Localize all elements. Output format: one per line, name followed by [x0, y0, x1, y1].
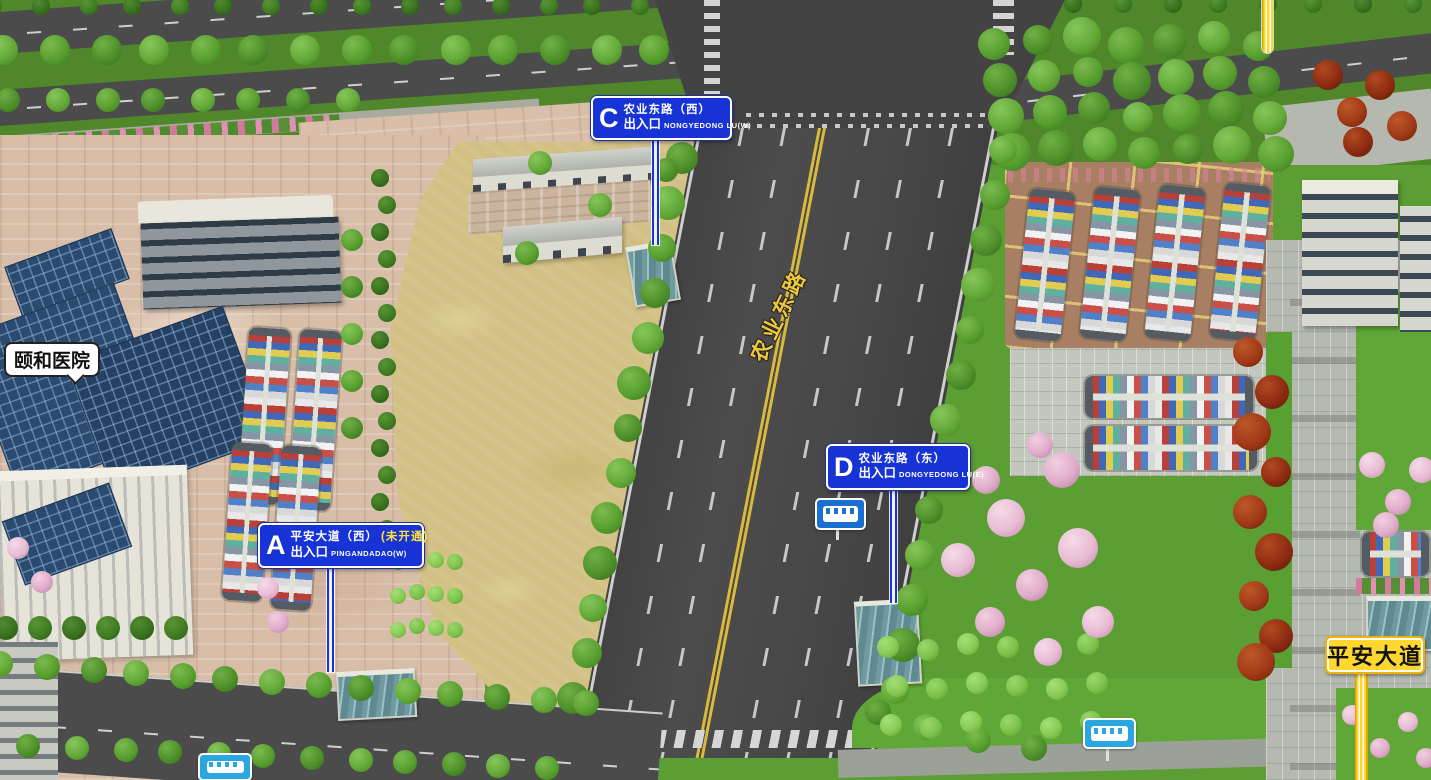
crosswalk-dots	[746, 113, 986, 117]
sign-road-name: 农业东路（东）	[859, 453, 985, 467]
tree	[1037, 639, 1059, 661]
tree	[987, 499, 1025, 537]
parked-cars-row	[1085, 376, 1253, 418]
entrance-letter: A	[266, 532, 286, 559]
campus-map: 农业东路	[0, 0, 1431, 780]
office-building	[1400, 206, 1431, 332]
tree	[1077, 633, 1099, 655]
entrance-letter: D	[834, 454, 854, 481]
sign-road-roman: PINGANDADAO(W)	[331, 549, 407, 558]
tree	[1239, 581, 1269, 611]
bus-stop-icon[interactable]	[198, 753, 252, 780]
building-windows	[1302, 194, 1398, 326]
entrance-d-canopy	[854, 598, 922, 686]
sign-road-name: 农业东路（西）	[624, 104, 752, 118]
sign-road-name: 平安大道（西）	[291, 531, 379, 543]
hospital-label[interactable]: 颐和医院	[4, 342, 100, 377]
entrance-a-canopy	[336, 668, 417, 721]
crosswalk	[704, 0, 720, 94]
tree	[1034, 638, 1062, 666]
flower-hedge	[1356, 578, 1431, 594]
sign-entrance-text: 出入口	[859, 466, 897, 481]
building-windows	[1400, 216, 1431, 332]
hospital-annex	[0, 642, 58, 780]
pingan-avenue-sign[interactable]: 平安大道	[1325, 636, 1425, 674]
lawn-patch	[1336, 688, 1431, 780]
entrance-a-sign[interactable]: A 平安大道（西）(未开通) 出入口PINGANDADAO(W)	[258, 523, 424, 568]
sign-pole	[1355, 666, 1368, 780]
bus-glyph	[1091, 726, 1127, 741]
sign-pole	[327, 560, 334, 672]
sign-status-note: (未开通)	[381, 531, 428, 543]
crosswalk	[993, 0, 1014, 55]
sign-entrance-text: 出入口	[624, 117, 662, 132]
sign-pole	[890, 481, 897, 603]
office-building	[1302, 180, 1398, 326]
entrance-c-sign[interactable]: C 农业东路（西） 出入口NONGYEDONG LU(W)	[591, 96, 732, 140]
hospital-main-building	[138, 194, 348, 336]
flower-strip	[1008, 168, 1270, 182]
sign-pole	[652, 133, 659, 245]
sign-road-roman: DONGYEDONG LU(E)	[899, 470, 984, 479]
plaza-paving	[1262, 89, 1431, 165]
parked-cars-row	[1085, 426, 1257, 470]
tree	[997, 636, 1019, 658]
sign-pole	[1262, 0, 1273, 53]
entrance-d-sign[interactable]: D 农业东路（东） 出入口DONGYEDONG LU(E)	[826, 444, 970, 490]
tree	[957, 633, 979, 655]
tree	[1058, 528, 1098, 568]
tree	[1082, 606, 1114, 638]
top-avenue-east	[990, 0, 1431, 165]
entrance-letter: C	[599, 105, 619, 132]
building-body	[140, 217, 341, 310]
tree	[975, 607, 1005, 637]
tree	[1233, 495, 1267, 529]
sign-road-roman: NONGYEDONG LU(W)	[664, 121, 751, 130]
bus-stop-icon[interactable]	[815, 498, 866, 530]
bus-stop-icon[interactable]	[1083, 718, 1136, 749]
tree	[1016, 569, 1048, 601]
lawn-patch	[1266, 332, 1292, 668]
parked-cars-row	[1362, 532, 1429, 576]
building-roof	[1302, 180, 1398, 194]
tree	[941, 543, 975, 577]
bus-glyph	[823, 506, 858, 521]
sign-entrance-text: 出入口	[291, 545, 329, 560]
bus-glyph	[207, 761, 244, 774]
